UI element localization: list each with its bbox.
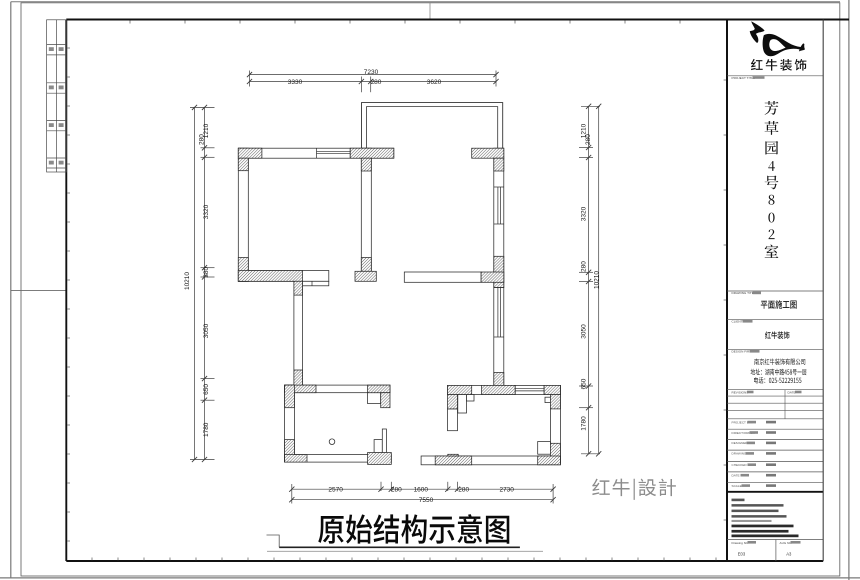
svg-text:280: 280 [203,266,210,277]
svg-text:280: 280 [391,487,402,494]
svg-text:2570: 2570 [328,487,343,494]
svg-text:1780: 1780 [203,422,210,437]
svg-text:1780: 1780 [581,416,588,431]
svg-text:SCALE: SCALE [732,484,742,488]
svg-text:Drawing NO: Drawing NO [732,541,749,545]
svg-text:1600: 1600 [414,487,429,494]
svg-text:3050: 3050 [203,323,210,338]
svg-text:3320: 3320 [581,206,588,221]
svg-text:DESIGN FIRM: DESIGN FIRM [732,350,753,354]
svg-text:DESIGNER: DESIGNER [732,441,749,445]
svg-text:DATE: DATE [788,390,796,394]
svg-text:280: 280 [585,134,592,145]
svg-text:650: 650 [203,384,210,395]
svg-text:A3: A3 [786,552,792,557]
svg-text:3320: 3320 [203,204,210,219]
svg-text:AUG NO: AUG NO [780,541,793,545]
svg-text:7550: 7550 [419,497,434,504]
svg-text:280: 280 [581,261,588,272]
svg-text:7230: 7230 [364,69,379,76]
svg-text:DATE: DATE [732,474,740,478]
svg-text:3330: 3330 [288,79,303,86]
svg-text:280: 280 [199,134,206,145]
svg-text:DRAWING TITLE: DRAWING TITLE [732,291,756,295]
svg-text:10210: 10210 [184,272,191,290]
svg-text:3050: 3050 [581,324,588,339]
svg-text:CLIENT: CLIENT [732,320,743,324]
svg-text:280: 280 [371,79,382,86]
svg-text:DRAWING: DRAWING [732,452,747,456]
svg-text:E03: E03 [738,552,746,557]
svg-text:3620: 3620 [427,79,442,86]
svg-text:PROJECT TITLE: PROJECT TITLE [732,76,756,80]
svg-text:REVISIONS: REVISIONS [732,390,749,394]
svg-text:650: 650 [581,378,588,389]
svg-text:10210: 10210 [594,271,601,289]
svg-text:280: 280 [458,487,469,494]
svg-text:2730: 2730 [499,487,514,494]
